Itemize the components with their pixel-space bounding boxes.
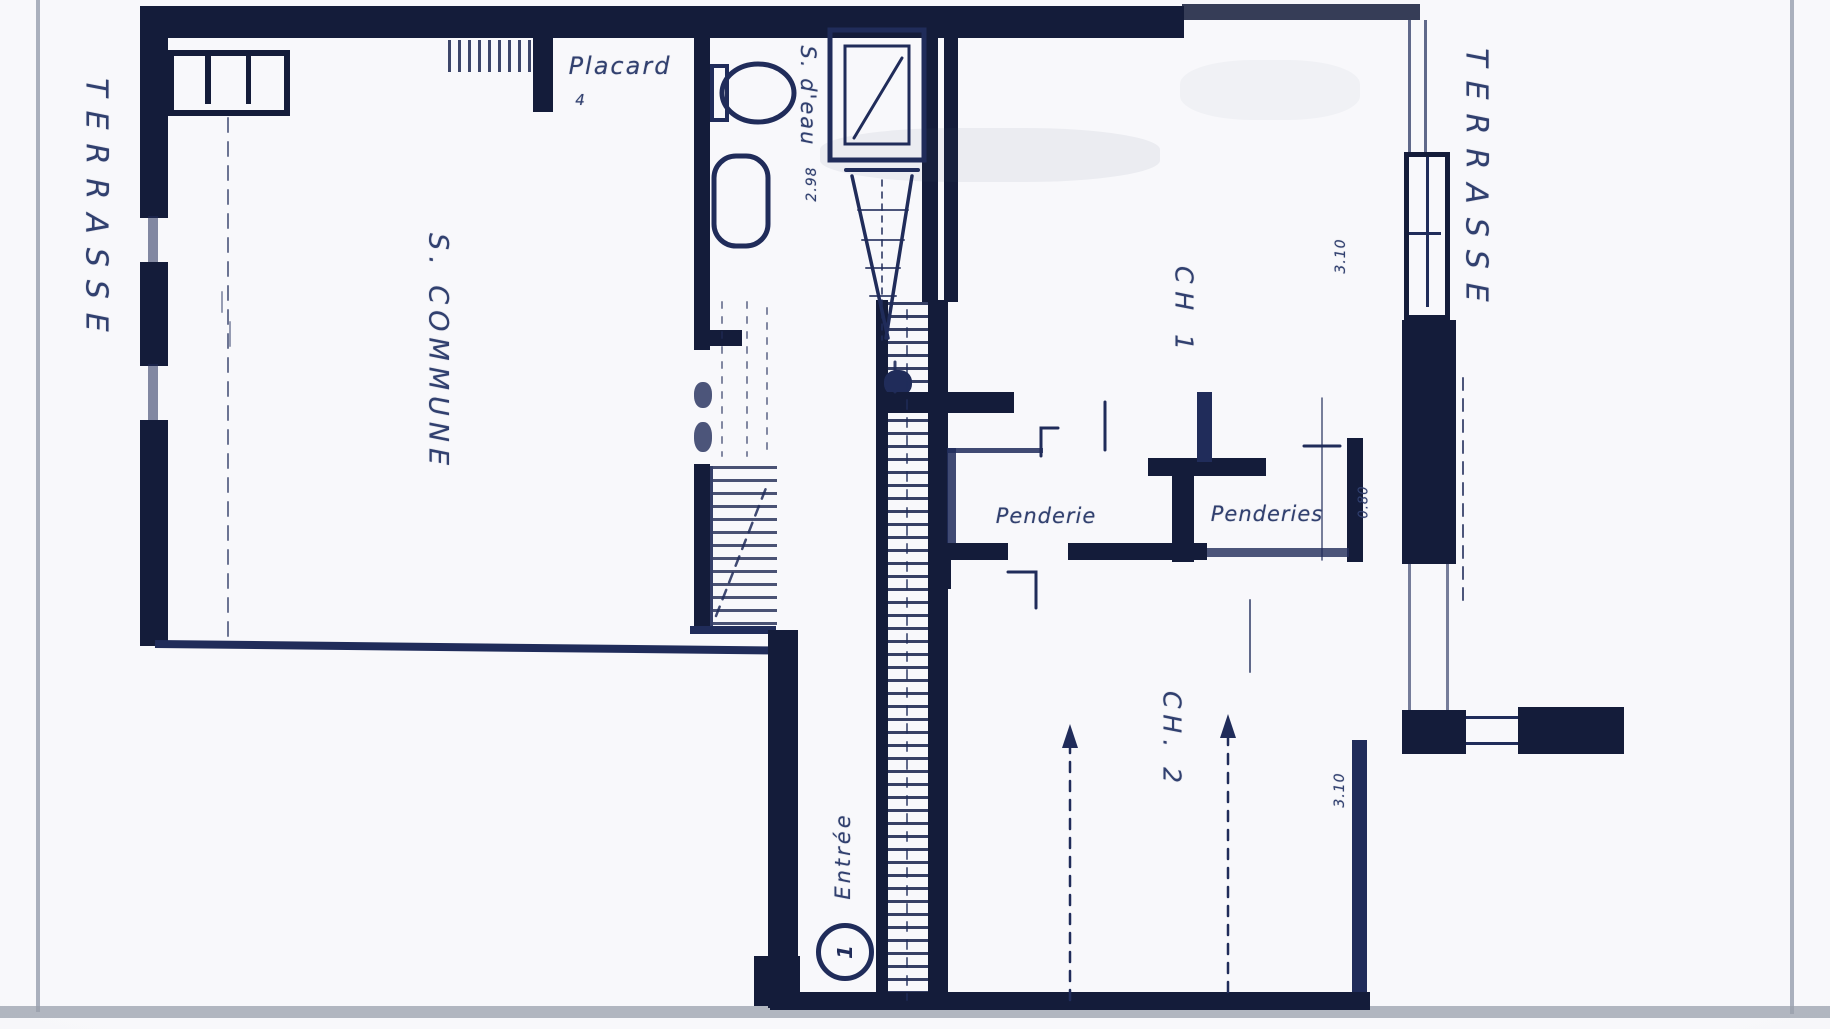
dim-arrow-ch2-right — [1220, 714, 1236, 992]
hall-stair-diagonal — [716, 488, 766, 616]
shower-icon — [830, 30, 924, 160]
wc-icon — [712, 64, 794, 122]
dim-line-penderies — [1304, 398, 1340, 560]
closet-label-penderie: Penderie — [996, 504, 1097, 528]
dim-arrow-ch2-left — [1062, 724, 1078, 1000]
room-label-s-deau: S. d'eau — [796, 46, 820, 147]
room-label-entree: Entrée — [831, 812, 855, 899]
dim-label-ch2: 3.10 — [1332, 772, 1348, 807]
entry-door-number-bubble: 1 — [816, 923, 874, 981]
room-label-placard: Placard — [569, 52, 672, 80]
room-label-s-commune: S. COMMUNE — [423, 233, 454, 471]
washbasin-icon — [714, 156, 768, 246]
door-swing-penderie — [1041, 428, 1058, 456]
door-swing-ch2 — [1008, 572, 1036, 608]
room-label-terrasse-left: TERRASSE — [79, 78, 114, 345]
dim-label-penderies-door: 0.80 — [1357, 486, 1372, 519]
dim-label-ch1: 3.10 — [1333, 238, 1349, 273]
scanned-floorplan-page: TERRASSE S. COMMUNE Placard 4 S. d'eau 2… — [0, 0, 1830, 1029]
closet-label-penderies: Penderies — [1211, 502, 1323, 526]
hall-dashes — [722, 302, 767, 456]
entry-door-number: 1 — [833, 945, 857, 959]
room-label-terrasse-right: TERRASSE — [1459, 48, 1494, 315]
room-label-ch2: CH. 2 — [1158, 691, 1187, 789]
fixtures-overlay — [0, 0, 1830, 1029]
room-label-ch1: CH 1 — [1170, 266, 1199, 358]
dim-label-s-deau: 2.98 — [804, 166, 820, 201]
dim-label-placard-note: 4 — [575, 91, 585, 109]
